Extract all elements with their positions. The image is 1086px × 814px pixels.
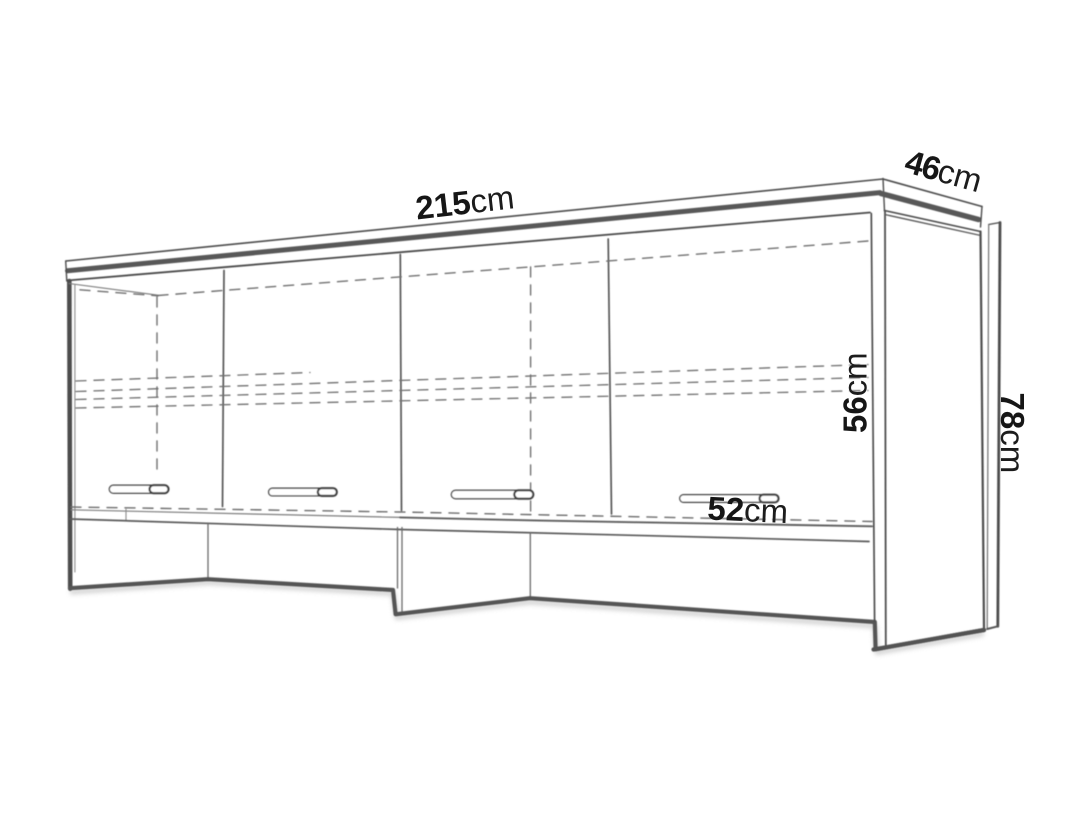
svg-text:cm: cm	[743, 491, 789, 530]
svg-text:cm: cm	[994, 429, 1031, 473]
svg-text:52: 52	[707, 490, 745, 529]
svg-text:cm: cm	[837, 352, 874, 396]
svg-text:215: 215	[414, 183, 473, 226]
svg-text:cm: cm	[468, 178, 516, 220]
svg-text:56: 56	[837, 396, 874, 433]
svg-text:78: 78	[994, 393, 1031, 430]
